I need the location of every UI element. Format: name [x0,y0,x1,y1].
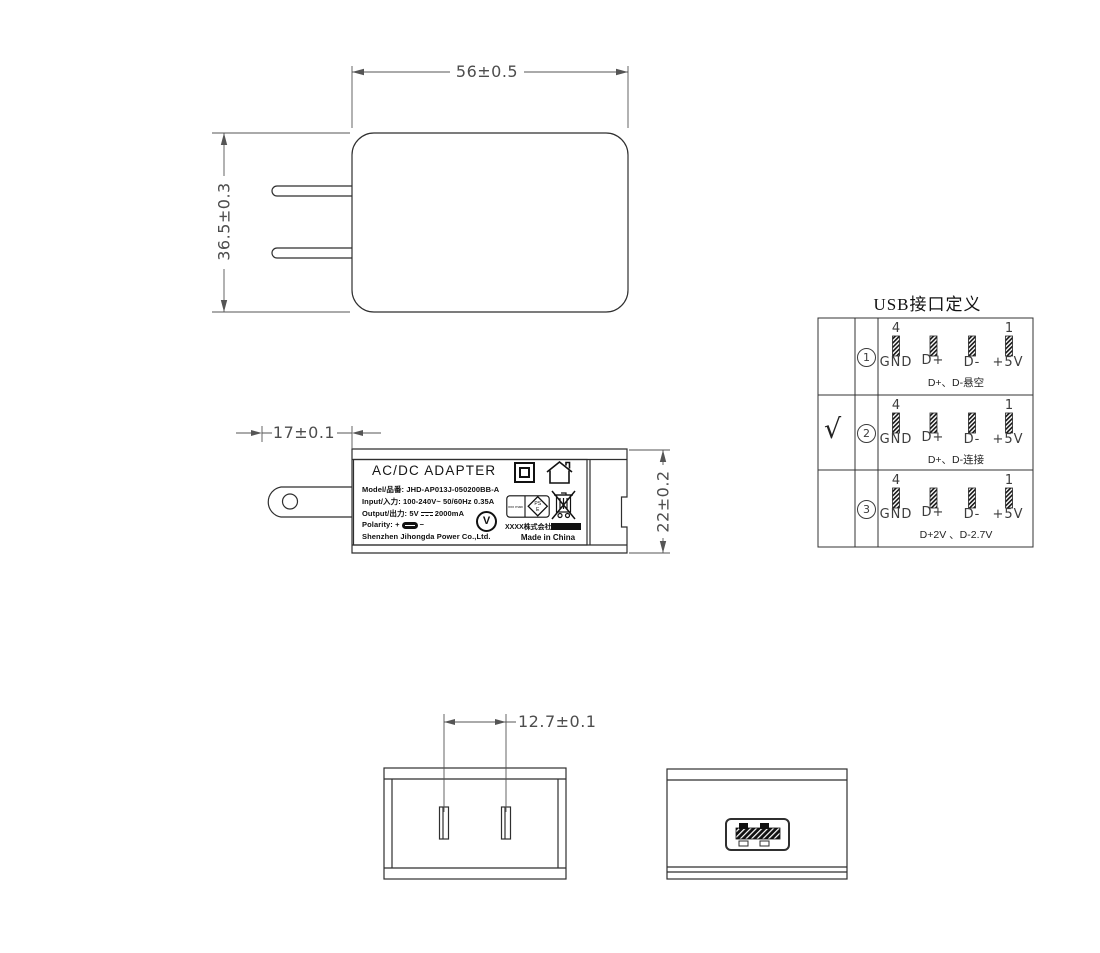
front-prong-top [272,186,352,196]
efficiency-v-icon: V [476,511,497,532]
class2-insulation-icon [514,462,535,483]
pse-e-text: E [536,507,540,513]
row2-pin4: 4 [888,398,904,413]
row3-dminus: D- [960,507,984,522]
label-output-line: Output/出力: 5V2000mA [362,508,464,519]
row1-number: 1 [857,348,876,367]
row2-5v: +5V [989,432,1027,447]
row3-pin1: 1 [1001,473,1017,488]
label-output-prefix: Output/出力: 5V [362,509,419,518]
label-model-line: Model/品番: JHD-AP013J-050200BB-A [362,484,499,495]
indoor-use-icon [546,461,573,485]
dim-pin-pitch: 12.7±0.1 [518,712,596,731]
polarity-plus: + [395,520,399,529]
label-polarity-line: Polarity: +− [362,520,424,529]
bottom-plug-view [384,768,566,879]
row2-number: 2 [857,424,876,443]
row2-dminus: D- [960,432,984,447]
row3-gnd: GND [878,507,914,522]
usb-tongue [736,828,780,839]
front-view [272,133,628,312]
plug-face-body [384,768,566,879]
bottom-usb-view [667,769,847,879]
front-prong-bottom [272,248,352,258]
row1-caption: D+、D-悬空 [880,375,1032,390]
weee-bin-icon [551,489,576,521]
front-body [352,133,628,312]
pse-mark-icon: PS E xxx max [506,495,550,518]
weee-black-bar [551,523,581,530]
row2-pin1: 1 [1001,398,1017,413]
row3-dplus: D+ [921,505,945,520]
row1-dminus: D- [960,355,984,370]
barrel-polarity-icon [402,522,418,529]
row1-gnd: GND [878,355,914,370]
usb-face-body [667,769,847,879]
side-prong [268,487,352,517]
dim-front-width: 56±0.5 [449,62,525,81]
label-company: Shenzhen Jihongda Power Co.,Ltd. [362,532,491,541]
row2-caption: D+、D-连接 [880,452,1032,467]
polarity-minus: − [420,520,424,529]
label-title: AC/DC ADAPTER [372,463,496,478]
row1-5v: +5V [989,355,1027,370]
row3-5v: +5V [989,507,1027,522]
row3-caption: D+2V 、D-2.7V [880,527,1032,542]
label-output-suffix: 2000mA [435,509,464,518]
row2-dplus: D+ [921,430,945,445]
row3-number: 3 [857,500,876,519]
engineering-drawing-canvas: 56±0.5 36.5±0.3 17±0.1 22±0.2 12.7±0.1 U… [0,0,1100,953]
label-input-line: Input/入力: 100-240V~ 50/60Hz 0.35A [362,496,494,507]
dc-voltage-icon [421,510,433,518]
label-importer: XXXX株式会社 [505,522,552,532]
row1-pin1: 1 [1001,321,1017,336]
usb-table-title: USB接口定义 [845,290,1010,315]
row1-dplus: D+ [921,353,945,368]
row3-pin4: 4 [888,473,904,488]
row2-gnd: GND [878,432,914,447]
row2-check-mark: √ [824,414,841,445]
label-made-in: Made in China [508,533,588,542]
dim-front-height: 36.5±0.3 [215,172,234,272]
pse-small-text: xxx max [508,504,523,509]
row1-pin4: 4 [888,321,904,336]
polarity-label: Polarity: [362,520,393,529]
dim-side-depth: 22±0.2 [654,452,673,552]
dim-side-prong: 17±0.1 [264,423,344,442]
product-label: AC/DC ADAPTER Model/品番: JHD-AP013J-05020… [355,459,588,545]
